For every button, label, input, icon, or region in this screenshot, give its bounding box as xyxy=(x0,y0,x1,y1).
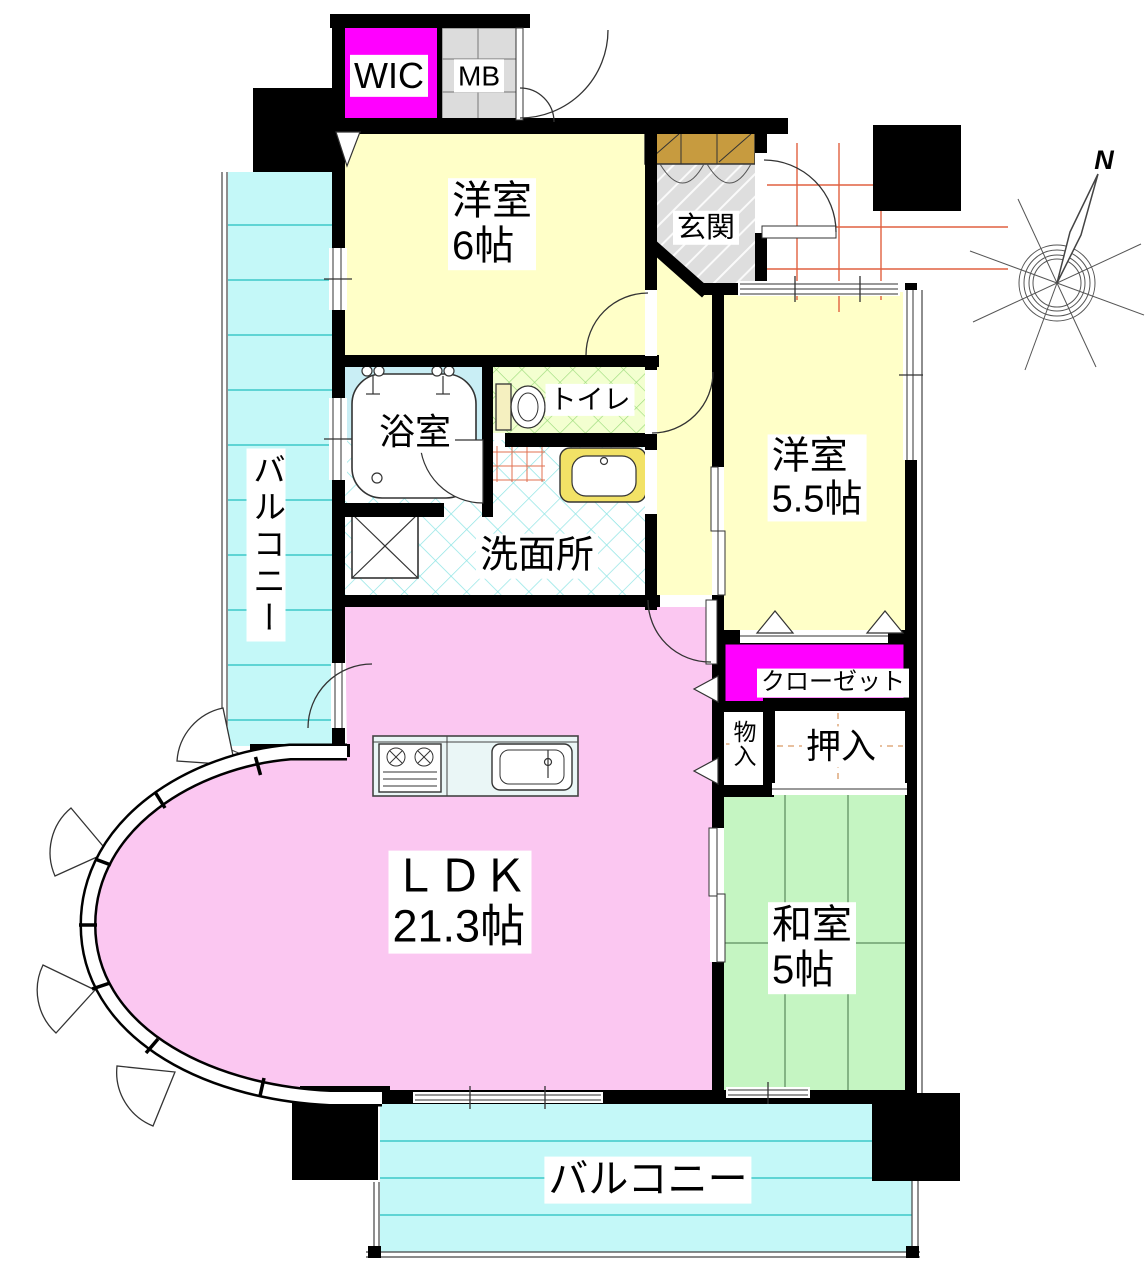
oshiire-label: 押入 xyxy=(802,726,880,767)
casement-window-fan xyxy=(37,965,95,1033)
door-arc xyxy=(520,30,608,118)
wic-label: WIC xyxy=(350,55,428,97)
closet-label: クローゼット xyxy=(757,669,909,698)
pillar xyxy=(872,1093,960,1181)
shoe-cabinet xyxy=(645,132,755,164)
entrance-door-leaf xyxy=(762,226,836,238)
balcony-bottom-label: バルコニー xyxy=(544,1157,751,1204)
casement-window-fan xyxy=(117,1066,175,1126)
bathroom-label: 浴室 xyxy=(375,411,455,453)
door-leaf xyxy=(706,600,717,664)
balcony-left-label: バルコニー xyxy=(247,449,286,642)
pillar xyxy=(292,1098,378,1180)
western-room-5-5-label: 洋室 5.5帖 xyxy=(768,434,867,521)
storage-label: 物 入 xyxy=(730,719,761,769)
washroom-label: 洗面所 xyxy=(476,534,598,579)
western-room-6-label: 洋室 6帖 xyxy=(448,178,536,270)
entrance-label: 玄関 xyxy=(673,211,739,245)
pillar xyxy=(253,88,333,172)
floor-plan-drawing xyxy=(0,0,1148,1280)
compass-icon xyxy=(970,174,1144,370)
japanese-room-label: 和室 5帖 xyxy=(768,902,856,994)
toilet-fixture xyxy=(496,384,511,430)
mb-label: MB xyxy=(454,59,504,92)
entrance-door-arc xyxy=(764,160,836,232)
ldk-label: ＬＤＫ 21.3帖 xyxy=(388,851,531,954)
toilet-label: トイレ xyxy=(546,384,635,416)
compass-north-label: N xyxy=(1090,144,1118,176)
floor-plan: WIC MB 洋室 6帖 玄関 洋室 5.5帖 バルコニー 浴室 トイレ 洗面所… xyxy=(0,0,1148,1280)
stove-icon xyxy=(379,744,441,792)
pillar xyxy=(873,125,961,211)
